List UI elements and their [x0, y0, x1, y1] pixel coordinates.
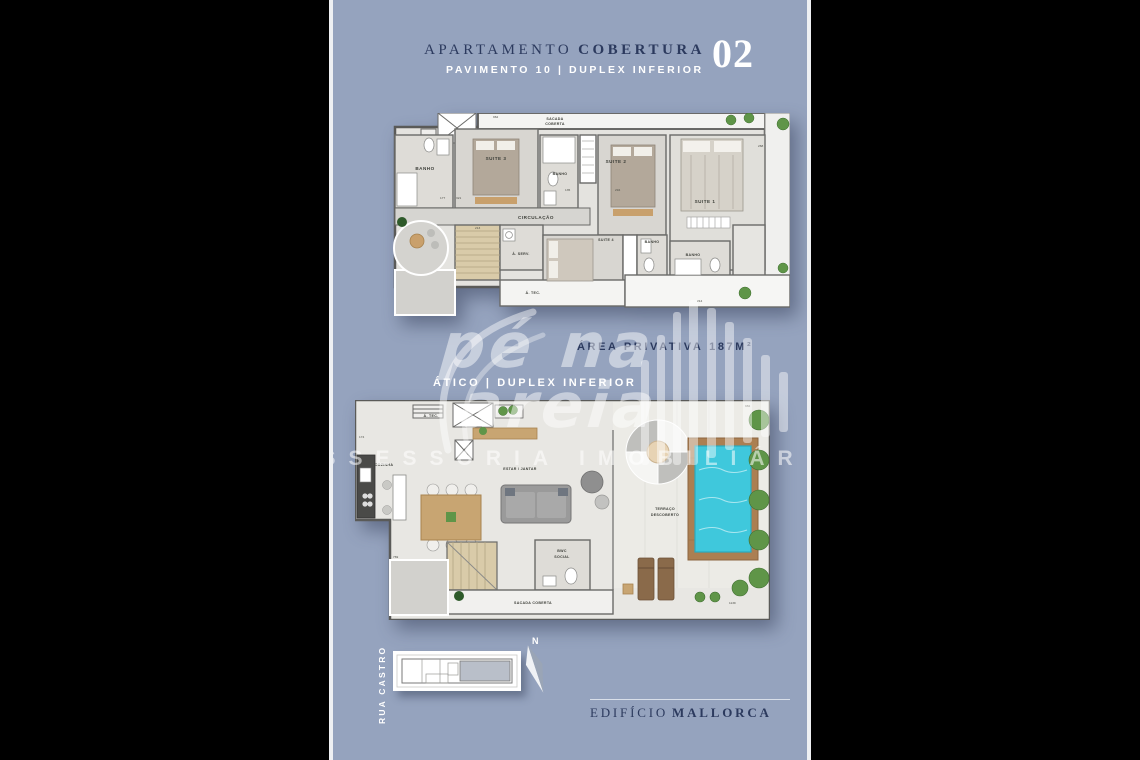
suite4-bed	[547, 239, 593, 281]
page-title: APARTAMENTOCOBERTURA	[333, 42, 705, 59]
room-label-suite-4: SUITE 4	[598, 238, 614, 242]
area-value: 187M²	[709, 341, 753, 353]
pool	[688, 438, 758, 560]
room-label-a-serv: Á. SERV.	[512, 251, 529, 256]
floor-plan-lower: Á. TEC. COZINHA ESTAR / JANTAR	[355, 400, 770, 620]
dim-268: 268	[758, 144, 763, 148]
dim-135: 135	[565, 188, 570, 192]
room-bwc-social	[535, 540, 590, 590]
stairs-lower	[447, 542, 497, 590]
area-label: ÁREA PRIVATIVA	[577, 341, 703, 353]
footer-divider	[590, 699, 790, 700]
closet-hatch-2	[623, 235, 637, 280]
building-name-bold: MALLORCA	[672, 705, 772, 720]
lower-patio	[390, 560, 448, 615]
dim-177: 177	[440, 196, 445, 200]
dim-1139: 1139	[729, 601, 736, 605]
room-a-tec	[500, 280, 625, 306]
plant-icon-sacada	[454, 591, 464, 601]
room-label-banho-2: BANHO	[553, 172, 568, 176]
armchair	[581, 471, 603, 493]
building-name-light: EDIFÍCIO	[590, 705, 668, 720]
upper-right-balcony	[765, 113, 790, 276]
room-label-suite-2: SUITE 2	[606, 159, 627, 164]
room-label-terraco-1: TERRAÇO	[655, 507, 675, 511]
closet-hatch	[580, 135, 596, 183]
sofa	[501, 485, 571, 523]
upper-sacada-coberta: SACADA COBERTA	[478, 113, 765, 129]
title-light: APARTAMENTO	[424, 42, 572, 58]
page-subtitle: PAVIMENTO 10 | DUPLEX INFERIOR	[446, 64, 704, 76]
flyer-background: APARTAMENTOCOBERTURA 02 PAVIMENTO 10 | D…	[0, 0, 1140, 760]
building-name: EDIFÍCIOMALLORCA	[590, 705, 772, 721]
room-label-sacada-2: COBERTA	[545, 122, 565, 126]
title-bold: COBERTURA	[578, 42, 705, 58]
room-label-terraco-2: DESCOBERTO	[651, 513, 679, 517]
dim-214: 214	[697, 299, 702, 303]
dim-174: 174	[359, 435, 364, 439]
umbrella-icon	[626, 420, 690, 484]
north-arrow-icon: N	[515, 636, 557, 696]
room-label-suite-1: SUITE 1	[695, 199, 716, 204]
room-label-suite-3: SUITE 3	[486, 156, 507, 161]
room-label-circulacao: CIRCULAÇÃO	[518, 214, 554, 220]
room-label-banho-1: BANHO	[415, 166, 434, 171]
room-label-estar-jantar: ESTAR / JANTAR	[503, 467, 537, 471]
compass-n-label: N	[532, 636, 539, 646]
upper-patio	[395, 270, 455, 315]
room-label-banho-4: BANHO	[686, 253, 701, 257]
private-area-label: ÁREA PRIVATIVA 187M²	[577, 341, 753, 353]
dim-962: 962	[493, 115, 498, 119]
dim-321: 321	[456, 196, 461, 200]
site-plan-thumbnail	[393, 651, 521, 691]
suite3-bed	[473, 139, 519, 204]
stairs-upper	[455, 225, 500, 280]
room-label-sacada-1: SACADA	[546, 117, 563, 121]
upper-bottom-balcony	[625, 275, 790, 307]
room-label-a-tec: Á. TEC.	[526, 290, 541, 295]
suite2-bed	[611, 145, 655, 216]
unit-number: 02	[712, 30, 754, 77]
room-hall	[733, 225, 765, 280]
room-label-sacada-lower: SACADA COBERTA	[514, 601, 552, 605]
dim-213: 213	[475, 226, 480, 230]
room-label-a-tec-lower: Á. TEC.	[424, 413, 439, 418]
street-label: RUA CASTRO	[377, 646, 387, 724]
site-plan-drawing	[396, 654, 518, 688]
floor-plan-upper: SACADA COBERTA	[393, 113, 790, 317]
flyer-panel: APARTAMENTOCOBERTURA 02 PAVIMENTO 10 | D…	[329, 0, 811, 760]
dim-982: 982	[745, 404, 750, 408]
dim-294: 294	[615, 188, 620, 192]
room-label-bwc-2: SOCIAL	[554, 555, 570, 559]
dim-769: 769	[393, 555, 398, 559]
atico-heading: ÁTICO | DUPLEX INFERIOR	[433, 377, 636, 389]
room-label-cozinha: COZINHA	[375, 463, 394, 467]
room-label-banho-3: BANHO	[645, 240, 660, 244]
side-table	[595, 495, 609, 509]
dining-table	[421, 484, 481, 551]
room-label-bwc-1: BWC	[557, 549, 567, 553]
